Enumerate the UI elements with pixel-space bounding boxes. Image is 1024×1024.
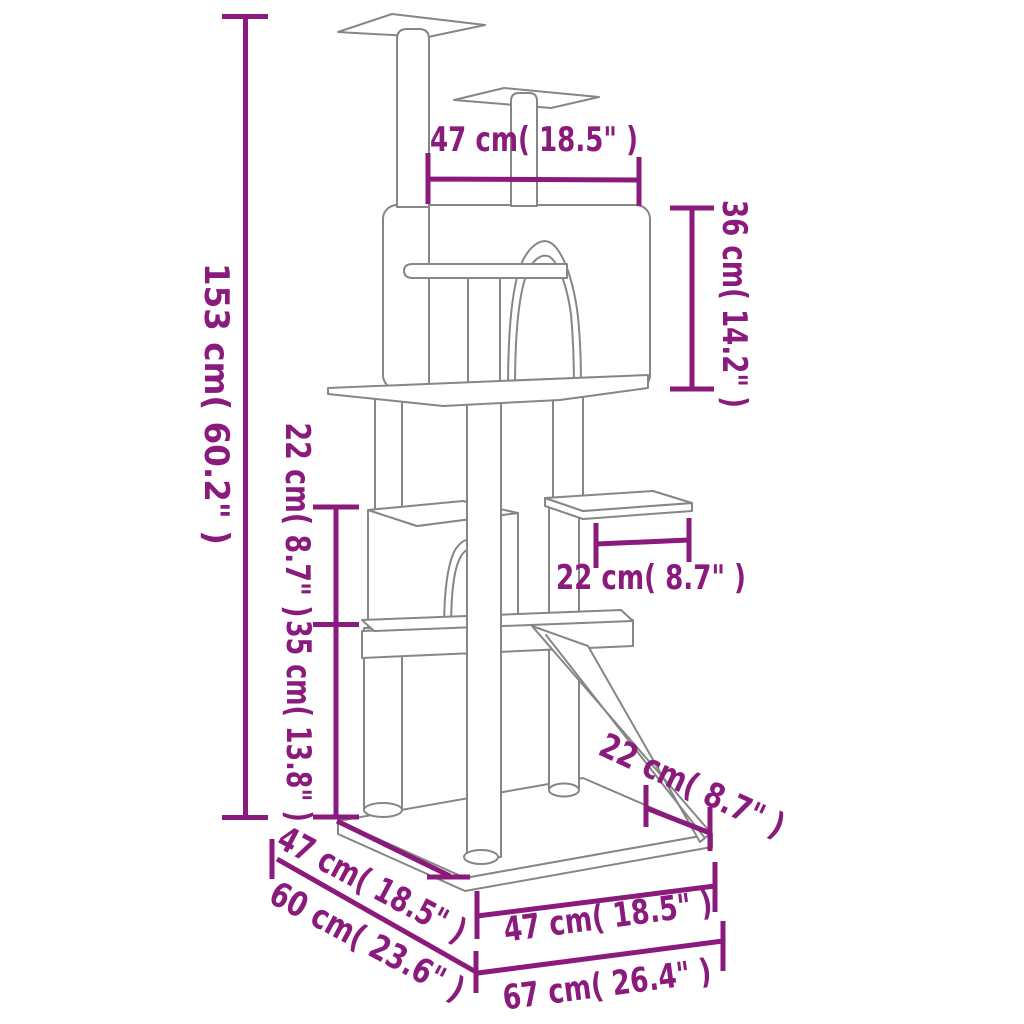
central-post: [467, 395, 501, 857]
central-post-foot: [464, 850, 498, 864]
dim-perch-width: 22 cm( 8.7" ): [556, 518, 746, 598]
dim-perch-width-label: 22 cm( 8.7" ): [556, 558, 746, 598]
diagram-canvas: 153 cm( 60.2" ) 47 cm( 18.5" ) 36 cm( 14…: [0, 0, 1024, 1024]
dim-lower-section-label: 35 cm( 13.8" ): [278, 620, 318, 822]
left-mid-post: [375, 395, 402, 512]
dim-total-height-label: 153 cm( 60.2" ): [196, 263, 236, 545]
dim-house-height: 36 cm( 14.2" ): [670, 200, 754, 408]
top-perch-post: [397, 29, 429, 207]
left-lower-post-foot: [364, 803, 402, 817]
rear-right-post-foot: [549, 784, 579, 797]
house-shelf: [404, 264, 567, 278]
dim-upper-gap-label: 22 cm( 8.7" ): [277, 423, 317, 618]
dim-top-width-label: 47 cm( 18.5" ): [430, 120, 638, 160]
dim-left-heights: 22 cm( 8.7" ) 35 cm( 13.8" ): [277, 423, 359, 823]
dim-base-width-label: 47 cm( 18.5" ): [501, 883, 714, 950]
dim-total-width-label: 67 cm( 26.4" ): [500, 951, 713, 1018]
shelf-post: [468, 274, 500, 397]
right-mid-post: [553, 385, 583, 498]
dim-house-height-label: 36 cm( 14.2" ): [714, 200, 754, 408]
diagram-page: 153 cm( 60.2" ) 47 cm( 18.5" ) 36 cm( 14…: [0, 0, 1024, 1024]
dim-total-height: 153 cm( 60.2" ): [196, 17, 268, 819]
